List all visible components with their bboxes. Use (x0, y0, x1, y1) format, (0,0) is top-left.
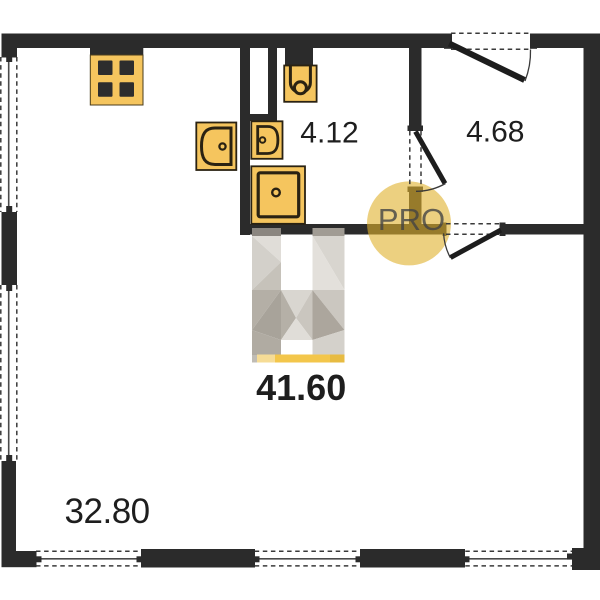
svg-text:41.60: 41.60 (256, 367, 346, 408)
svg-text:4.68: 4.68 (466, 115, 524, 148)
svg-text:PRO: PRO (378, 202, 445, 237)
svg-text:32.80: 32.80 (65, 492, 150, 531)
svg-text:4.12: 4.12 (300, 116, 358, 149)
